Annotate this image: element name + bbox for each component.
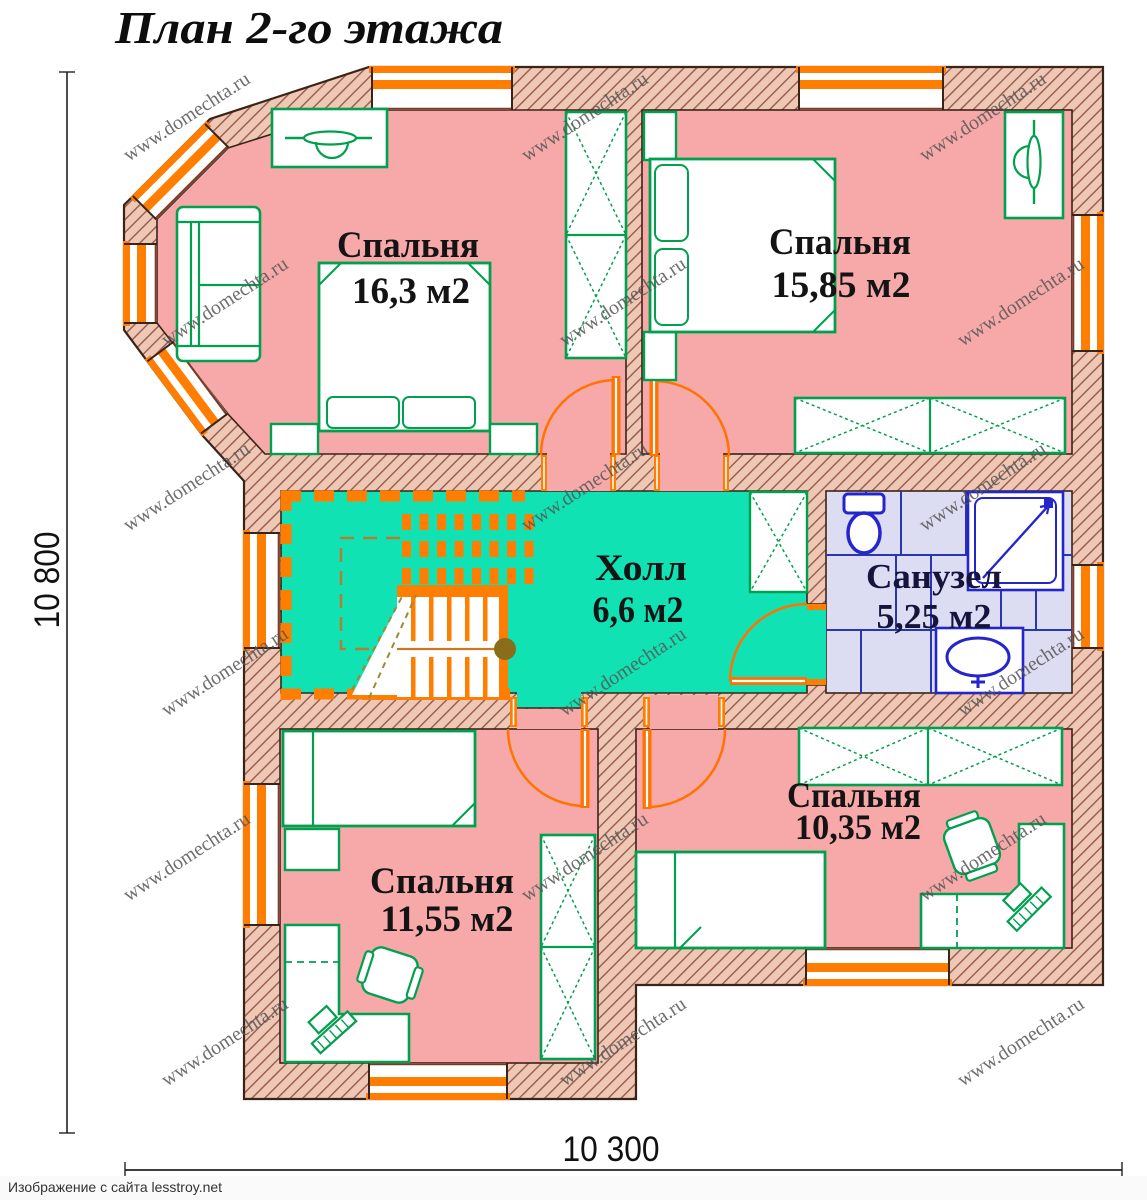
svg-text:5,25 м2: 5,25 м2 <box>877 597 992 636</box>
svg-text:Спальня: Спальня <box>370 861 514 902</box>
svg-text:10 800: 10 800 <box>28 532 67 629</box>
svg-text:План 2-го этажа: План 2-го этажа <box>114 2 503 53</box>
svg-text:16,3 м2: 16,3 м2 <box>352 271 470 312</box>
svg-text:10 300: 10 300 <box>563 1130 660 1169</box>
svg-text:Холл: Холл <box>595 548 687 589</box>
svg-text:6,6 м2: 6,6 м2 <box>593 590 684 631</box>
svg-text:Санузел: Санузел <box>866 557 1002 596</box>
svg-text:www.domechta.ru: www.domechta.ru <box>953 993 1088 1091</box>
svg-text:Спальня: Спальня <box>769 222 911 263</box>
svg-text:15,85 м2: 15,85 м2 <box>772 265 911 306</box>
svg-text:11,55 м2: 11,55 м2 <box>381 899 514 940</box>
svg-text:Изображение с сайта lesstroy.n: Изображение с сайта lesstroy.net <box>8 1179 222 1195</box>
svg-text:10,35 м2: 10,35 м2 <box>795 807 921 847</box>
svg-text:www.domechta.ru: www.domechta.ru <box>119 808 254 906</box>
svg-text:www.domechta.ru: www.domechta.ru <box>119 438 254 536</box>
svg-text:Спальня: Спальня <box>337 225 479 266</box>
